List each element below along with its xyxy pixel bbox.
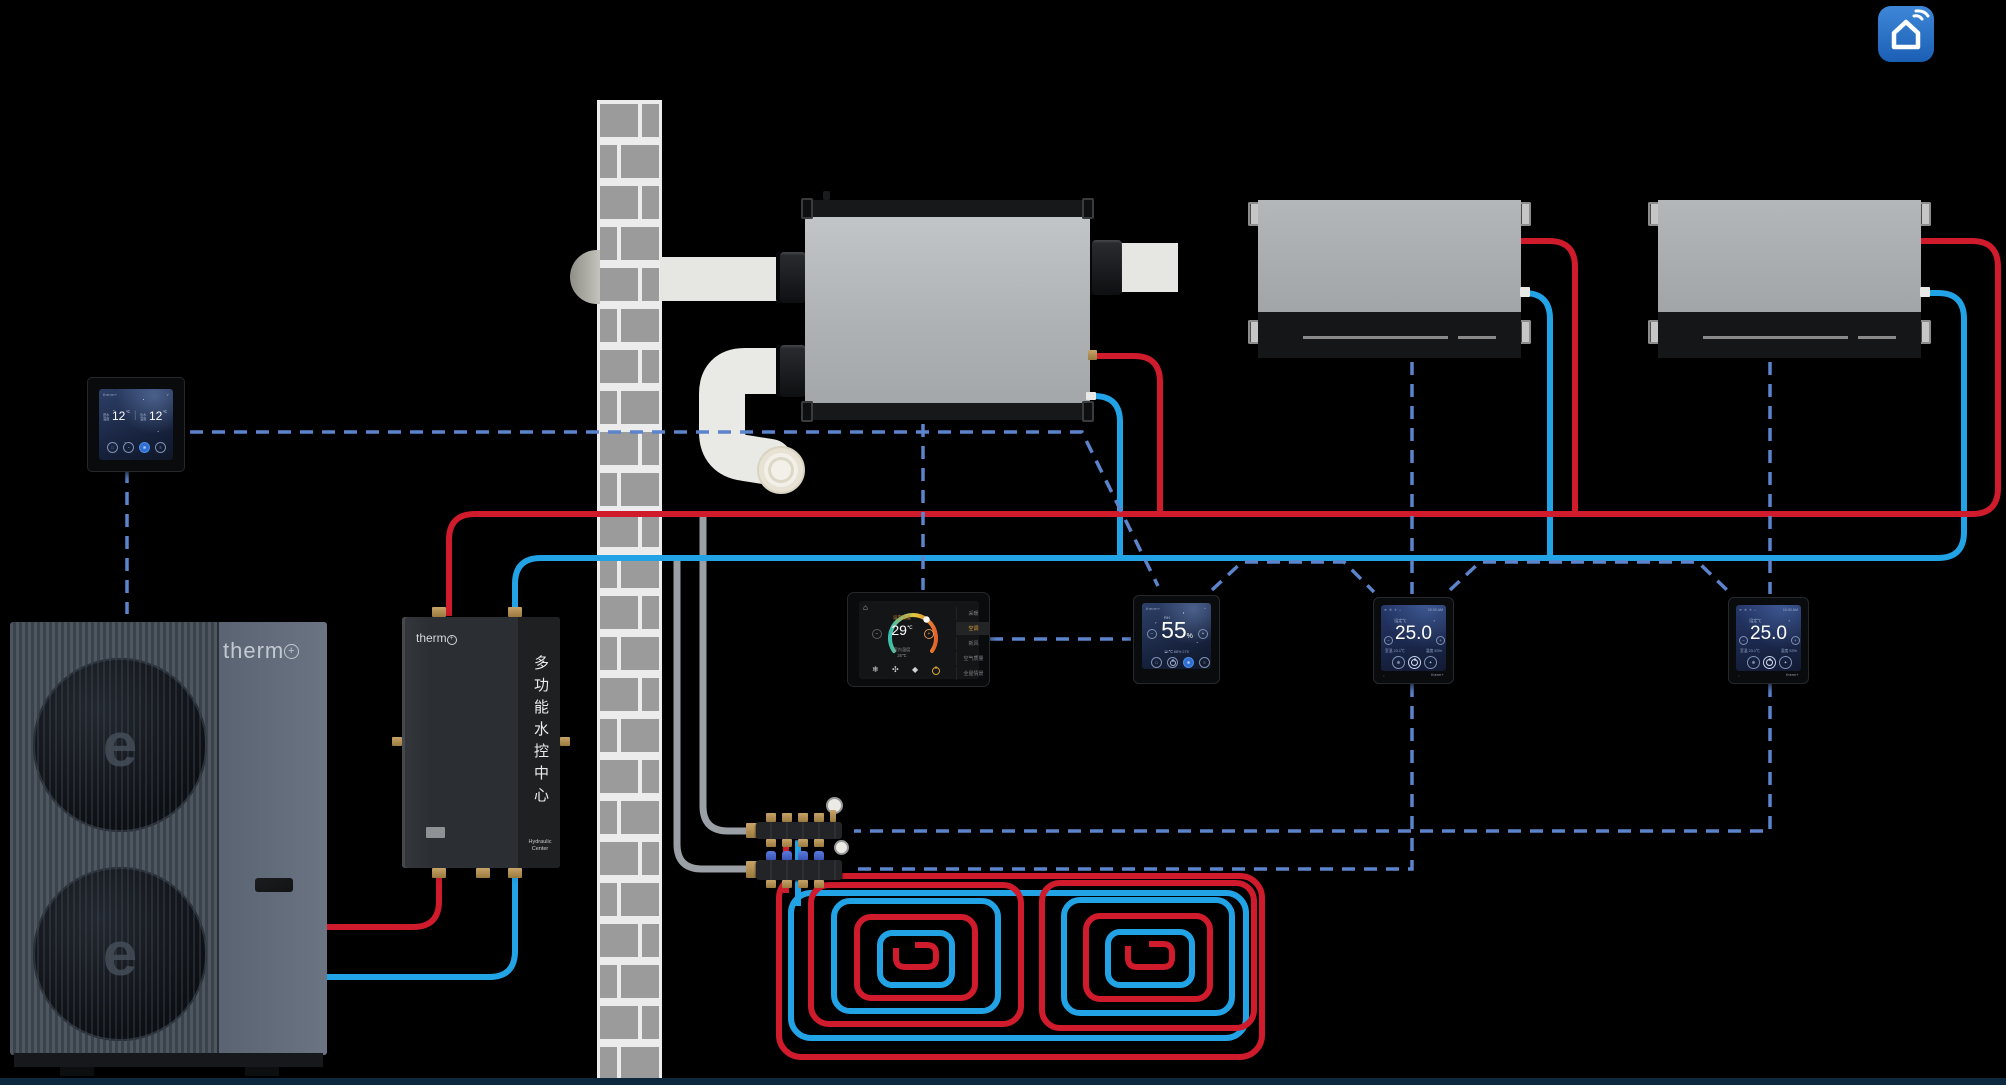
valve-cap [766,851,776,860]
set-temp-label: 设定温度 [882,615,922,621]
pipe-fitting [432,607,446,617]
foot [245,1067,279,1076]
hydraulic-label-plate [426,827,445,838]
hydraulic-sub-label-2: Center [520,846,560,853]
smart-home-app-icon[interactable] [1878,6,1934,62]
fan-mode-icon[interactable]: ✣ [892,665,899,674]
menu-ac[interactable]: 空调 [956,622,990,635]
humidity-mode-icon[interactable]: ◆ [912,665,918,674]
status-icons: ≋ ❄ ☀ ⌂ [1384,608,1402,612]
temp-minus-button[interactable]: − [1739,636,1748,645]
hrv-unit [805,200,1090,420]
corner-bracket [801,401,813,422]
foot [60,1067,94,1076]
hydraulic-brand: therm+ [416,631,457,645]
main-thermostat[interactable]: ⌂ 设定温度 29℃ − + 室内温度 25℃ ❄ ✣ ◆ 采暖 空调 新风 空… [847,592,990,687]
temp-right-value: 12 [149,409,162,423]
temp-plus-button[interactable]: + [924,629,934,639]
supply-duct-stub [1120,243,1178,292]
set-temp-value: 25.0 [1741,623,1796,645]
humidity-value: 55 [1161,617,1187,643]
cold-water-fitting [1920,287,1930,297]
room-thermostat-1[interactable]: ≋ ❄ ☀ ⌂ 10:30 AM 设定℃ ▪ 25.0 − + 室温 23.1℃… [1373,597,1454,684]
fan-button[interactable]: ❋ [139,442,150,453]
power-button[interactable] [1167,657,1178,668]
cold-water-fitting [1086,392,1096,400]
vent-slot [1303,336,1448,339]
hydraulic-center-unit: therm+ 多功能水控中心 Hydraulic Center [402,617,560,868]
panel-brand: therm+ [103,392,117,397]
chevron-down-icon[interactable]: ∨ [166,392,169,397]
room-thermostat-2[interactable]: ≋ ❄ ☀ ⌂ 10:30 AM 设定℃ ▪ 25.0 − + 室温 23.1℃… [1728,597,1809,684]
fan-coil-unit-2 [1658,200,1921,358]
temp-plus-button[interactable]: + [1436,636,1445,645]
timer-button[interactable]: ◔ [123,442,134,453]
set-temp-value: 29 [891,622,907,638]
fan-logo: e [103,919,137,990]
lock-button[interactable]: □ [107,442,118,453]
manifold-bar-supply [756,822,842,839]
menu-button[interactable]: ≡ [155,442,166,453]
floor-heating-loops [779,876,1262,1057]
footer-strip [0,1078,2006,1085]
pressure-gauge [834,840,849,855]
chevron-down-icon[interactable]: ⌄ [1203,605,1207,611]
fan-button[interactable]: ❋ [1747,656,1760,669]
pipe-fitting [782,839,792,847]
hydraulic-vertical-label: 多功能水控中心 [530,655,551,835]
brick-wall [597,100,662,1085]
menu-air-quality[interactable]: 空气质量 [956,652,990,665]
lock-button[interactable]: □ [1151,657,1162,668]
insulated-pipes [677,516,760,869]
corner-icon: ▫ [1738,673,1739,678]
set-temp-unit: ℃ [907,625,913,631]
humidity-minus-button[interactable]: − [1147,629,1157,639]
temp-left-value: 12 [112,409,125,423]
cooling-mode-icon[interactable]: ❄ [872,665,879,674]
house-wifi-icon [1878,6,1934,62]
temp-minus-button[interactable]: − [1384,636,1393,645]
temp-minus-button[interactable]: − [872,629,882,639]
pipe-fitting [508,868,522,878]
clock-text: 10:30 AM [1428,608,1443,612]
room-temp-value: 25℃ [882,653,922,658]
pipe-fitting [798,839,808,847]
power-icon[interactable] [932,667,940,675]
humidity-reading: 湿度 53% [1781,649,1797,654]
hrv-port-left-top [776,252,806,303]
fan-coil-unit-1 [1258,200,1521,358]
corner-bracket [1082,401,1094,422]
menu-heating[interactable]: 采暖 [956,607,990,620]
temp-left-unit: ℃ [126,410,130,414]
pipe-fitting [766,880,776,888]
divider: | [134,410,137,421]
home-icon[interactable]: ⌂ [863,603,868,612]
corner-bracket [1082,198,1094,219]
humidity-reading: 湿度 53% [1426,649,1442,654]
menu-fresh-air[interactable]: 新风 [956,637,990,650]
hvac-system-diagram: therm+ e e therm+ 多功能水控中心 Hydraulic Cent… [0,0,2006,1085]
temp-left-label-2: 温度 [103,417,109,421]
heat-pump-display[interactable] [255,878,293,892]
cold-water-fitting [1520,287,1530,297]
temp-right-label-2: 温度 [140,417,146,421]
pipe-fitting [392,737,402,746]
set-temp-value: 25.0 [1386,623,1441,645]
pipe-fitting [782,813,792,822]
pipe-fitting [798,813,808,822]
brand-plus-icon: + [447,635,457,645]
fan-logo: e [103,710,137,781]
heat-pump-unit: therm+ e e [10,622,327,1077]
valve-cap [814,851,824,860]
ceiling-diffuser [757,446,805,494]
pipe-fitting [560,737,570,746]
fan-button[interactable]: ❋ [1183,657,1194,668]
vent-slot [1858,336,1896,339]
pipe-fitting [476,868,490,878]
mode-button[interactable]: ✦ [1779,656,1792,669]
menu-scenes[interactable]: 全屋情景 [956,667,990,680]
clock-text: 10:30 AM [1783,608,1798,612]
heat-pump-wall-controller[interactable]: therm+ ∨ 进水 温度 12 ℃ | 出水 温度 12 ℃ □ ◔ ❋ ≡ [87,377,185,472]
pipe-fitting [766,813,776,822]
vent-slot [1458,336,1496,339]
status-icons: ≋ ❄ ☀ ⌂ [1739,608,1757,612]
hrv-port-left-bottom [776,345,806,397]
pipe-fitting [798,880,808,888]
pipe-fitting [782,880,792,888]
room-temp-reading: 室温 23.1℃ [1385,649,1405,654]
power-button[interactable] [1408,656,1421,669]
valve-cap [782,851,792,860]
pipe-fitting [814,880,824,888]
mode-button[interactable]: ✦ [1424,656,1437,669]
temp-right-unit: ℃ [163,410,167,414]
hrv-port-right [1088,240,1122,295]
room-temp-reading: 室温 23.1℃ [1740,649,1760,654]
screw [823,191,830,200]
panel-brand: therm+ [1146,606,1160,611]
outdoor-vent-cap [570,250,600,304]
aux-readings: 25℃ 88% 275 [1146,649,1207,654]
fan-button[interactable]: ❋ [1392,656,1405,669]
pipe-fitting [432,868,446,878]
vent-slot [1703,336,1848,339]
menu-button[interactable]: ≡ [1199,657,1210,668]
humidity-unit: % [1187,633,1193,640]
pipe-fitting [814,813,824,822]
fan-grille-top: e [33,658,207,832]
fan-grille-bottom: e [33,867,207,1041]
panel-brand: therm+ [1431,673,1444,677]
humidity-plus-button[interactable]: + [1198,629,1208,639]
brand-plus-icon: + [284,644,299,659]
pipe-fitting [814,839,824,847]
valve-cap [798,851,808,860]
pipe-fitting [508,607,522,617]
corner-icon: ▫ [1383,673,1384,678]
panel-brand: therm+ [1786,673,1799,677]
manifold-bar-return [756,860,842,880]
heat-pump-brand: therm+ [223,638,323,664]
temp-plus-button[interactable]: + [1791,636,1800,645]
humidity-control-panel[interactable]: therm+ ⌄ RH 55% − + 25℃ 88% 275 □ ❋ ≡ [1133,595,1220,684]
pipe-fitting [766,839,776,847]
hot-water-fitting [1088,350,1097,360]
corner-bracket [801,198,813,219]
power-button[interactable] [1763,656,1776,669]
